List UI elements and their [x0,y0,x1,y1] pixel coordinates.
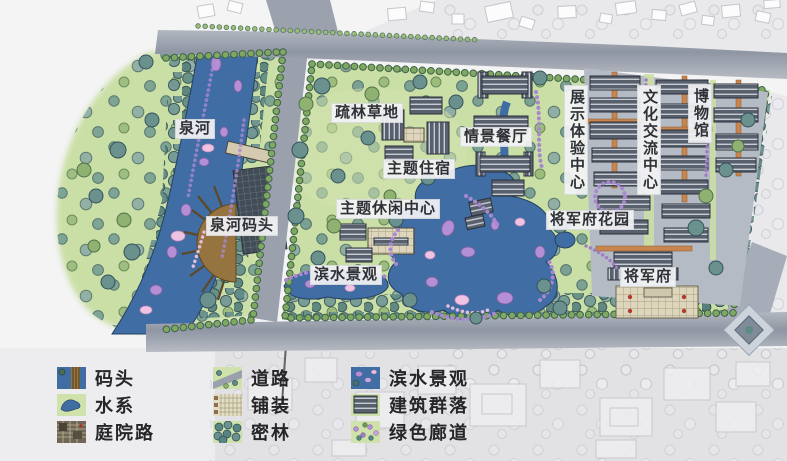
legend-label: 绿色廊道 [389,419,469,445]
legend-item-paving: 铺装 [213,392,291,418]
legend-label: 庭院路 [95,419,155,445]
legend-item-building-cluster: 建筑群落 [351,392,469,418]
legend-swatch-waterfront [351,367,380,389]
legend-item-courtyard-path: 庭院路 [57,419,155,445]
label-sparse-woodland: 疏林草地 [331,103,403,123]
legend-item-waterfront: 滨水景观 [351,365,469,391]
label-theme-lodging: 主题住宿 [383,159,455,179]
label-general-mansion-garden: 将军府花园 [546,210,634,230]
legend-swatch-dock [57,367,86,389]
legend-label: 铺装 [251,392,291,418]
legend-item-dock: 码头 [57,365,135,391]
legend-item-road: 道路 [213,365,291,391]
legend-label: 道路 [251,365,291,391]
label-exhibition-experience-center: 展示体验中心 [564,85,588,195]
legend-swatch-green-corridor [351,421,380,443]
label-culture-exchange-center: 文化交流中心 [637,85,661,195]
label-quanhe: 泉河 [175,119,215,139]
legend-label: 密林 [251,419,291,445]
legend-label: 水系 [95,392,135,418]
legend-swatch-water [57,394,86,416]
legend-item-dense-forest: 密林 [213,419,291,445]
legend-swatch-road [213,367,242,389]
legend-item-green-corridor: 绿色廊道 [351,419,469,445]
legend-swatch-courtyard-path [57,421,86,443]
legend-label: 滨水景观 [389,365,469,391]
label-general-mansion: 将军府 [620,267,676,287]
label-waterfront-landscape: 滨水景观 [310,265,382,285]
site-plan: 泉河 泉河码头 疏林草地 情景餐厅 主题住宿 主题休闲中心 滨水景观 展示体验中… [0,0,787,461]
legend-swatch-dense-forest [213,421,242,443]
mansion-hall [614,252,672,268]
legend-swatch-paving [213,394,242,416]
legend-label: 建筑群落 [389,392,469,418]
legend-label: 码头 [95,365,135,391]
label-quanhe-dock: 泉河码头 [206,216,278,236]
label-scene-restaurant: 情景餐厅 [460,127,532,147]
legend-swatch-building-cluster [351,394,380,416]
label-theme-leisure-center: 主题休闲中心 [336,199,440,219]
label-museum: 博物馆 [688,84,712,143]
legend-item-water: 水系 [57,392,135,418]
